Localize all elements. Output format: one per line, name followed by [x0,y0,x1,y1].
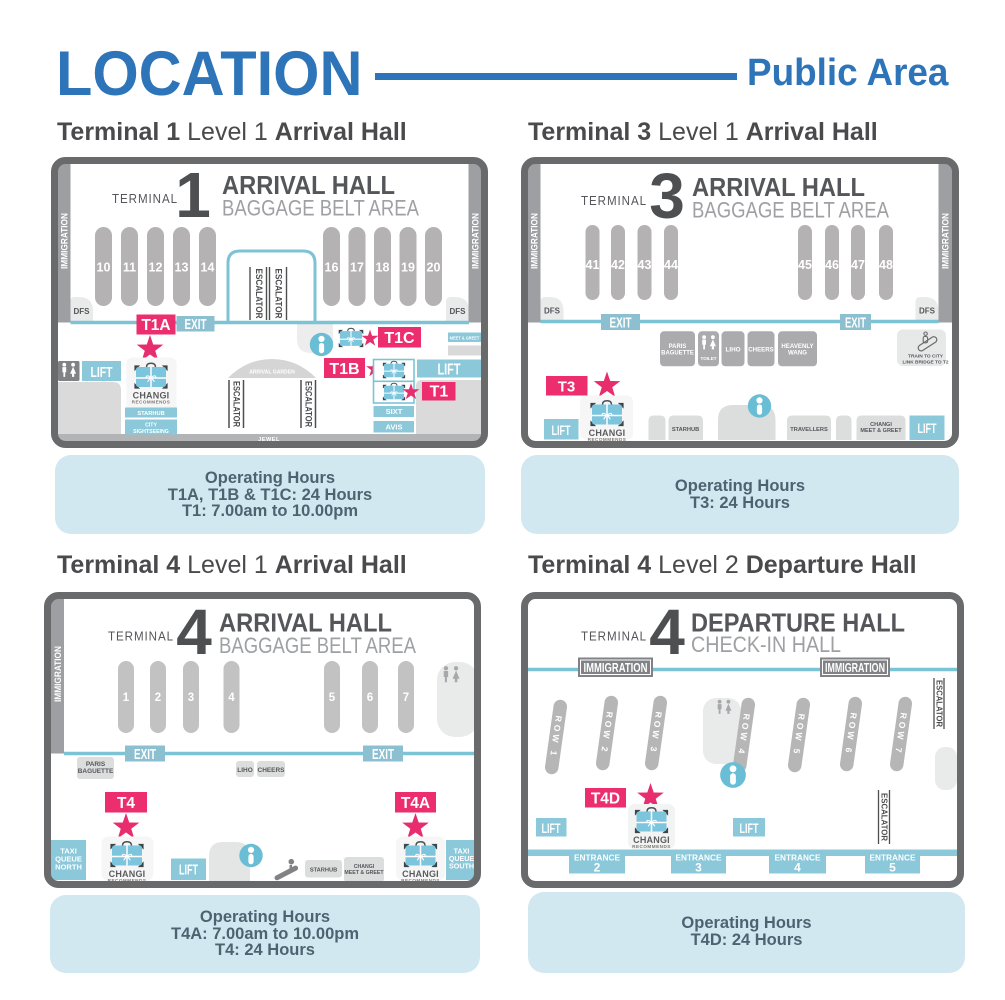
svg-text:42: 42 [611,258,625,272]
svg-text:2: 2 [155,692,161,704]
svg-text:IMMIGRATION: IMMIGRATION [59,213,69,269]
svg-text:LIFT: LIFT [438,362,461,379]
svg-text:EXIT: EXIT [610,315,632,332]
svg-text:DFS: DFS [544,307,561,316]
svg-text:2: 2 [594,861,601,875]
svg-text:IMMIGRATION: IMMIGRATION [584,661,648,675]
svg-text:IMMIGRATION: IMMIGRATION [529,213,539,269]
svg-text:20: 20 [427,261,441,275]
svg-text:WANG: WANG [788,349,807,356]
svg-text:11: 11 [123,261,136,275]
svg-text:LIFT: LIFT [91,365,113,381]
svg-text:10: 10 [97,261,111,275]
svg-text:TERMINAL: TERMINAL [581,194,647,208]
svg-text:48: 48 [879,258,893,272]
svg-text:TERMINAL: TERMINAL [108,630,174,644]
svg-text:T4A: T4A [401,795,430,812]
svg-text:EXIT: EXIT [845,315,866,332]
svg-text:TERMINAL: TERMINAL [112,192,178,206]
svg-text:18: 18 [376,261,390,275]
svg-text:ESCALATOR: ESCALATOR [232,381,242,427]
svg-text:BAGGAGE BELT AREA: BAGGAGE BELT AREA [219,633,416,658]
svg-text:AVIS: AVIS [386,423,403,432]
svg-text:EXIT: EXIT [134,746,156,763]
svg-text:13: 13 [175,261,189,275]
svg-text:ESCALATOR: ESCALATOR [880,793,889,841]
svg-text:4: 4 [794,861,801,875]
svg-text:T3: T3 [558,379,576,396]
svg-text:4: 4 [649,596,685,668]
svg-text:14: 14 [201,261,215,275]
svg-text:44: 44 [664,258,678,272]
svg-text:4: 4 [176,596,212,668]
svg-text:LIFT: LIFT [552,422,571,438]
svg-text:1: 1 [123,692,130,704]
svg-text:BAGUETTE: BAGUETTE [78,768,114,775]
svg-text:LIFT: LIFT [918,420,937,436]
svg-text:EXIT: EXIT [372,746,394,763]
svg-text:TERMINAL: TERMINAL [581,630,647,644]
svg-text:CHANGI: CHANGI [870,422,892,428]
svg-text:LIFT: LIFT [542,820,561,836]
svg-text:LIHO: LIHO [237,767,252,774]
svg-text:T4D: T4D [591,791,620,808]
svg-text:EXIT: EXIT [185,316,207,333]
svg-text:ESCALATOR: ESCALATOR [935,680,944,727]
svg-text:19: 19 [401,261,415,275]
svg-text:6: 6 [367,692,373,704]
svg-text:TRAIN TO CITY: TRAIN TO CITY [908,354,944,360]
svg-text:DFS: DFS [74,307,91,316]
svg-text:ESCALATOR: ESCALATOR [304,381,314,427]
svg-text:CHECK-IN HALL: CHECK-IN HALL [691,632,841,657]
svg-text:IMMIGRATION: IMMIGRATION [470,213,480,269]
svg-text:ARRIVAL GARDEN: ARRIVAL GARDEN [249,370,295,376]
svg-text:DFS: DFS [450,307,467,316]
svg-text:CHEERS: CHEERS [258,767,286,774]
svg-text:1: 1 [175,159,211,231]
svg-text:SIXT: SIXT [386,407,403,416]
svg-text:47: 47 [851,258,865,272]
svg-text:ESCALATOR: ESCALATOR [253,269,264,319]
svg-text:MEET & GREET: MEET & GREET [450,336,480,342]
svg-text:LIFT: LIFT [740,820,759,836]
svg-text:MEET & GREET: MEET & GREET [344,870,384,876]
svg-text:7: 7 [403,692,409,704]
svg-text:5: 5 [329,692,336,704]
svg-text:T1B: T1B [329,361,359,378]
svg-text:LINK BRIDGE TO T2: LINK BRIDGE TO T2 [903,359,949,365]
svg-text:STARHUB: STARHUB [137,411,164,417]
svg-text:PARIS: PARIS [86,761,106,768]
svg-text:IMMIGRATION: IMMIGRATION [941,213,951,269]
svg-text:LIFT: LIFT [179,862,198,879]
svg-text:16: 16 [325,261,339,275]
svg-text:T1A: T1A [141,317,170,334]
svg-text:T4: T4 [117,795,135,812]
svg-text:12: 12 [149,261,163,275]
svg-text:STARHUB: STARHUB [310,868,337,874]
svg-text:5: 5 [889,861,896,875]
svg-text:17: 17 [350,261,364,275]
svg-text:ESCALATOR: ESCALATOR [273,269,284,319]
svg-text:BAGGAGE BELT AREA: BAGGAGE BELT AREA [692,198,889,223]
svg-text:CHANGI: CHANGI [354,864,375,870]
svg-text:3: 3 [188,692,194,704]
svg-text:TAXI: TAXI [454,848,470,856]
svg-text:SOUTH: SOUTH [449,862,474,870]
svg-text:T1C: T1C [384,330,415,347]
svg-text:43: 43 [638,258,652,272]
svg-text:IMMIGRATION: IMMIGRATION [53,646,63,702]
svg-text:LIHO: LIHO [725,347,740,354]
svg-text:41: 41 [586,258,600,272]
svg-text:46: 46 [825,258,839,272]
svg-text:NORTH: NORTH [55,862,82,871]
svg-text:CITY: CITY [145,423,157,429]
svg-text:CHEERS: CHEERS [748,347,773,354]
svg-text:STARHUB: STARHUB [672,427,699,433]
svg-text:SIGHTSEEING: SIGHTSEEING [133,429,169,435]
svg-text:45: 45 [798,258,812,272]
svg-text:TOILET: TOILET [701,356,717,361]
svg-text:PARIS: PARIS [669,344,687,350]
svg-text:BAGGAGE BELT AREA: BAGGAGE BELT AREA [222,196,419,221]
svg-text:3: 3 [649,160,685,232]
svg-text:QUEUE: QUEUE [449,855,475,863]
svg-text:MEET & GREET: MEET & GREET [860,428,902,434]
svg-text:T1: T1 [430,384,449,401]
svg-text:3: 3 [695,861,702,875]
svg-text:TRAVELLERS: TRAVELLERS [790,427,828,433]
svg-text:DFS: DFS [919,307,936,316]
svg-text:4: 4 [228,692,235,704]
svg-text:IMMIGRATION: IMMIGRATION [825,661,885,675]
svg-text:BAGUETTE: BAGUETTE [661,350,694,356]
